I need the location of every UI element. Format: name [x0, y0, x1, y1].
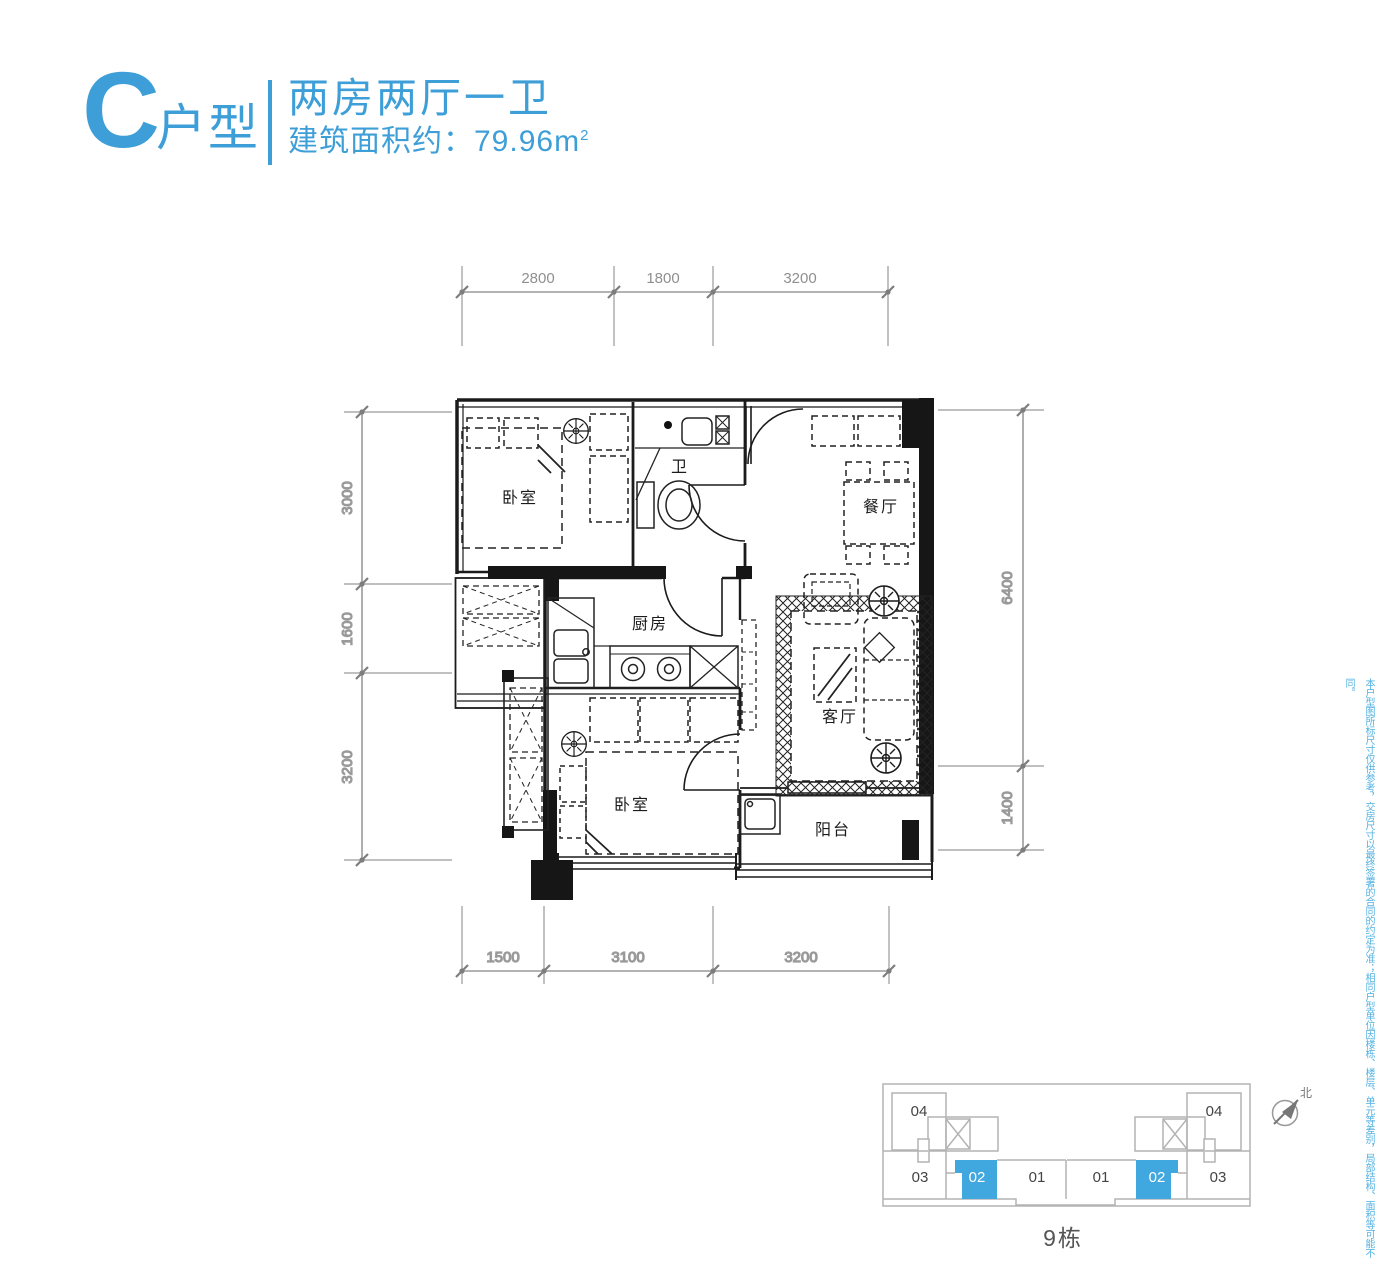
- ac-fan-icon: [562, 732, 587, 757]
- label-bedroom-top: 卧室: [502, 489, 538, 507]
- svg-text:6400: 6400: [999, 571, 1016, 604]
- svg-text:3100: 3100: [611, 949, 644, 966]
- svg-text:1400: 1400: [999, 791, 1016, 824]
- svg-text:3000: 3000: [339, 481, 356, 514]
- svg-text:3200: 3200: [783, 270, 816, 287]
- svg-text:04: 04: [911, 1103, 928, 1120]
- svg-text:03: 03: [1210, 1169, 1227, 1186]
- north-arrow-icon: 北: [1273, 1086, 1313, 1126]
- furniture-dining: [812, 416, 914, 564]
- svg-text:02: 02: [969, 1169, 986, 1186]
- ac-fan-icon: [564, 419, 589, 444]
- label-kitchen: 厨房: [632, 615, 668, 633]
- ac-fan-icon: [871, 743, 901, 773]
- label-balcony: 阳台: [815, 821, 851, 839]
- svg-text:1500: 1500: [486, 949, 519, 966]
- svg-text:04: 04: [1206, 1103, 1223, 1120]
- north-label: 北: [1300, 1086, 1312, 1100]
- furniture-bedroom-top: [462, 414, 628, 548]
- svg-text:01: 01: [1029, 1169, 1046, 1186]
- ac-fan-icon: [869, 586, 899, 616]
- label-bath: 卫: [671, 459, 689, 476]
- furniture-bathroom: [635, 416, 745, 529]
- dim-bottom: 1500 3100 3200: [456, 906, 895, 984]
- svg-text:1600: 1600: [339, 612, 356, 645]
- svg-text:02: 02: [1149, 1169, 1166, 1186]
- svg-text:03: 03: [912, 1169, 929, 1186]
- svg-text:2800: 2800: [521, 270, 554, 287]
- keyplan: 04 03 02 01 01 02 03 04 9栋: [883, 1084, 1250, 1251]
- label-living: 客厅: [822, 708, 858, 726]
- dim-top: 2800 1800 3200: [456, 266, 894, 346]
- dim-left: 3000 1600 3200: [339, 406, 452, 866]
- dim-right: 6400 1400: [938, 404, 1044, 856]
- floorplan-page: { "header": { "letter": "C", "suffix": "…: [0, 0, 1391, 1274]
- svg-text:01: 01: [1093, 1169, 1110, 1186]
- svg-text:1800: 1800: [646, 270, 679, 287]
- svg-text:3200: 3200: [784, 949, 817, 966]
- furniture-bedroom-bottom: [560, 698, 738, 854]
- building-caption: 9栋: [1043, 1225, 1083, 1251]
- ac-platforms: [463, 586, 548, 838]
- label-bedroom-bottom: 卧室: [614, 796, 650, 814]
- svg-text:3200: 3200: [339, 750, 356, 783]
- label-dining: 餐厅: [863, 498, 899, 516]
- furniture-living: [776, 574, 932, 796]
- disclaimer-text: 本户型图所标尺寸仅供参考，交房尺寸以最终签署的合同的约定为准；相同户型单位因楼栋…: [1358, 678, 1378, 1270]
- furniture-balcony: [740, 794, 780, 834]
- floorplan-drawing: 2800 1800 3200 1500 3100 3200 3000 1600 …: [0, 0, 1391, 1274]
